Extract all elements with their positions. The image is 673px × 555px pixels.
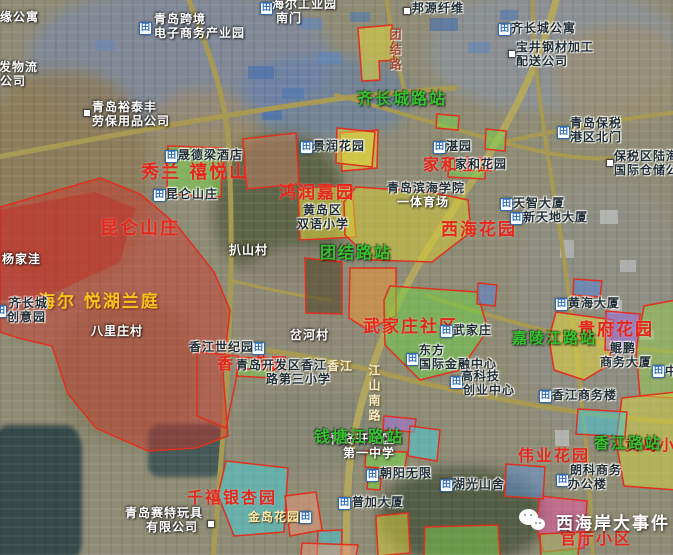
building-icon: 田 <box>652 365 665 378</box>
estate-qianxi-yinxingyuan[interactable]: 千禧银杏园 <box>187 489 277 507</box>
station-tuanjielu[interactable]: 团结路站 <box>320 244 392 262</box>
dot-icon <box>403 7 411 15</box>
label-binhai-xueyuan[interactable]: 青岛滨海学院 <box>387 181 465 195</box>
label-huanghai-dasha[interactable]: 黄海大厦 <box>568 296 620 310</box>
building-icon: 田 <box>555 298 568 311</box>
label-zhanyuan[interactable]: 湛园 <box>446 139 472 153</box>
label-pujia-dasha[interactable]: 普加大厦 <box>352 495 404 509</box>
label-baojing-gangcai[interactable]: 宝井钢材加工配送公司 <box>516 40 594 68</box>
label-jiahe-huayuan[interactable]: 家和花园 <box>455 157 507 171</box>
label-qichangcheng-gongyu[interactable]: 齐长城公寓 <box>511 21 576 35</box>
satellite-map[interactable]: 团结路江山南路香江秀兰 禧悦山昆仑山庄鸿润嘉园家和庄园西海花园武家庄社区贵府花园… <box>0 0 673 555</box>
building-icon: 田 <box>500 198 513 211</box>
building-icon: 田 <box>300 141 313 154</box>
label-yangjiawa[interactable]: 杨家洼 <box>2 252 41 266</box>
building-icon: 田 <box>510 212 523 225</box>
estate-xiulan-xiyueshan[interactable]: 秀兰 禧悦山 <box>141 163 249 183</box>
label-langke-shangwu[interactable]: 朗科商务办公楼 <box>570 463 622 491</box>
label-huguang-shanshe[interactable]: 湖光山舍 <box>453 477 505 491</box>
label-wujiazhuang-poi[interactable]: 武家庄 <box>453 323 492 337</box>
building-icon: 田 <box>299 511 312 524</box>
label-shengdeliang-hotel[interactable]: 晟德梁酒店 <box>178 148 243 162</box>
dot-icon <box>508 50 516 58</box>
building-icon: 田 <box>153 189 166 202</box>
label-haier-gongyeyuan-nanmen[interactable]: 海尔工业园南门 <box>272 0 337 25</box>
road-label-tuanjielu: 团结路 <box>388 28 402 73</box>
building-icon: 田 <box>406 353 419 366</box>
label-chahe-cun[interactable]: 岔河村 <box>290 328 329 342</box>
label-qingdao-kuajing[interactable]: 青岛跨境电子商务产业园 <box>154 12 245 40</box>
label-kunpeng-shangwu-dasha[interactable]: 鲲鹏商务大厦 <box>610 341 652 369</box>
label-pashan-cun[interactable]: 扒山村 <box>229 243 268 257</box>
watermark: 西海岸大事件 <box>518 506 670 536</box>
label-gaokeji-chuangye[interactable]: 高科技创业中心 <box>461 369 515 397</box>
dot-icon <box>606 159 614 167</box>
building-icon: 田 <box>539 390 552 403</box>
label-dongfang-jinrong[interactable]: 东方国际金融中心 <box>419 343 497 371</box>
label-xiangjiang-shangwulou[interactable]: 香江商务楼 <box>552 388 617 402</box>
label-huangdao-shuangyu-xiaoxue[interactable]: 黄岛区双语小学 <box>303 203 349 231</box>
building-icon: 田 <box>165 150 178 163</box>
station-jialingjianglu[interactable]: 嘉陵江路站 <box>512 331 597 345</box>
label-xintiandi-dasha[interactable]: 新天地大厦 <box>523 210 588 224</box>
label-luhai-cangchu[interactable]: 保税区陆海国际仓储公 <box>614 149 673 177</box>
estate-hongrun-jiayuan[interactable]: 鸿润嘉园 <box>279 184 355 203</box>
estate-xihai-huayuan[interactable]: 西海花园 <box>441 221 517 240</box>
label-chaoyang-wuxian[interactable]: 朝阳无限 <box>380 466 432 480</box>
label-bangyuan-xianwei[interactable]: 邦源纤维 <box>412 1 464 15</box>
labels-layer: 团结路江山南路香江秀兰 禧悦山昆仑山庄鸿润嘉园家和庄园西海花园武家庄社区贵府花园… <box>0 0 673 555</box>
road-label-jiangshannanlu: 江山南路 <box>367 364 381 424</box>
building-icon: 田 <box>440 479 453 492</box>
dot-icon <box>207 520 215 528</box>
label-saite-wanju[interactable]: 青岛赛特玩具有限公司 <box>125 506 203 534</box>
building-icon: 田 <box>557 126 570 139</box>
label-qichangcheng-chuangyiyuan[interactable]: 齐长城创意园 <box>9 296 48 324</box>
label-kunlun-shanzhuang[interactable]: 昆仑山庄 <box>166 187 218 201</box>
dot-icon <box>83 109 91 117</box>
wechat-icon <box>518 506 548 536</box>
building-icon: 田 <box>366 469 379 482</box>
label-jindao-huayuan[interactable]: 金岛花园 <box>248 510 300 524</box>
building-icon: 田 <box>433 141 446 154</box>
label-sanxiaoxue[interactable]: 青岛开发区香江路第三小学 <box>236 358 331 386</box>
building-icon: 田 <box>0 305 7 318</box>
label-zhong-poi[interactable]: 中 <box>665 364 673 378</box>
watermark-text: 西海岸大事件 <box>556 509 670 534</box>
building-icon: 田 <box>440 325 453 338</box>
station-xiangjianglu[interactable]: 香江路站 <box>594 436 662 450</box>
building-icon: 田 <box>139 22 152 35</box>
building-icon: 田 <box>498 23 511 36</box>
label-balizhuang-cun[interactable]: 八里庄村 <box>91 324 143 338</box>
label-xiangjiang-shijiyuan[interactable]: 香江世纪园 <box>189 340 254 354</box>
label-tianzhi-dasha[interactable]: 天智大厦 <box>513 196 565 210</box>
label-yuan-gongyu[interactable]: 缘公寓 <box>0 10 39 24</box>
estate-haier-yuehulanting[interactable]: 海尔 悦湖兰庭 <box>38 293 160 312</box>
label-baoshui-beimen[interactable]: 青岛保税港区北门 <box>570 116 622 144</box>
building-icon: 田 <box>338 497 351 510</box>
station-qiantangjianglu[interactable]: 钱塘江路站 <box>314 428 404 446</box>
label-sanfa-wuliu[interactable]: 三发物流公司 <box>0 60 38 88</box>
label-jingrun-huayuan[interactable]: 景润花园 <box>313 139 365 153</box>
station-qichangchenglu[interactable]: 齐长城路站 <box>357 90 447 108</box>
estate-kunlun-red[interactable]: 昆仑山庄 <box>100 219 180 239</box>
label-yitiyuchang[interactable]: 一体育场 <box>397 195 449 209</box>
label-yutaifeng[interactable]: 青岛裕泰丰劳保用品公司 <box>92 100 170 128</box>
